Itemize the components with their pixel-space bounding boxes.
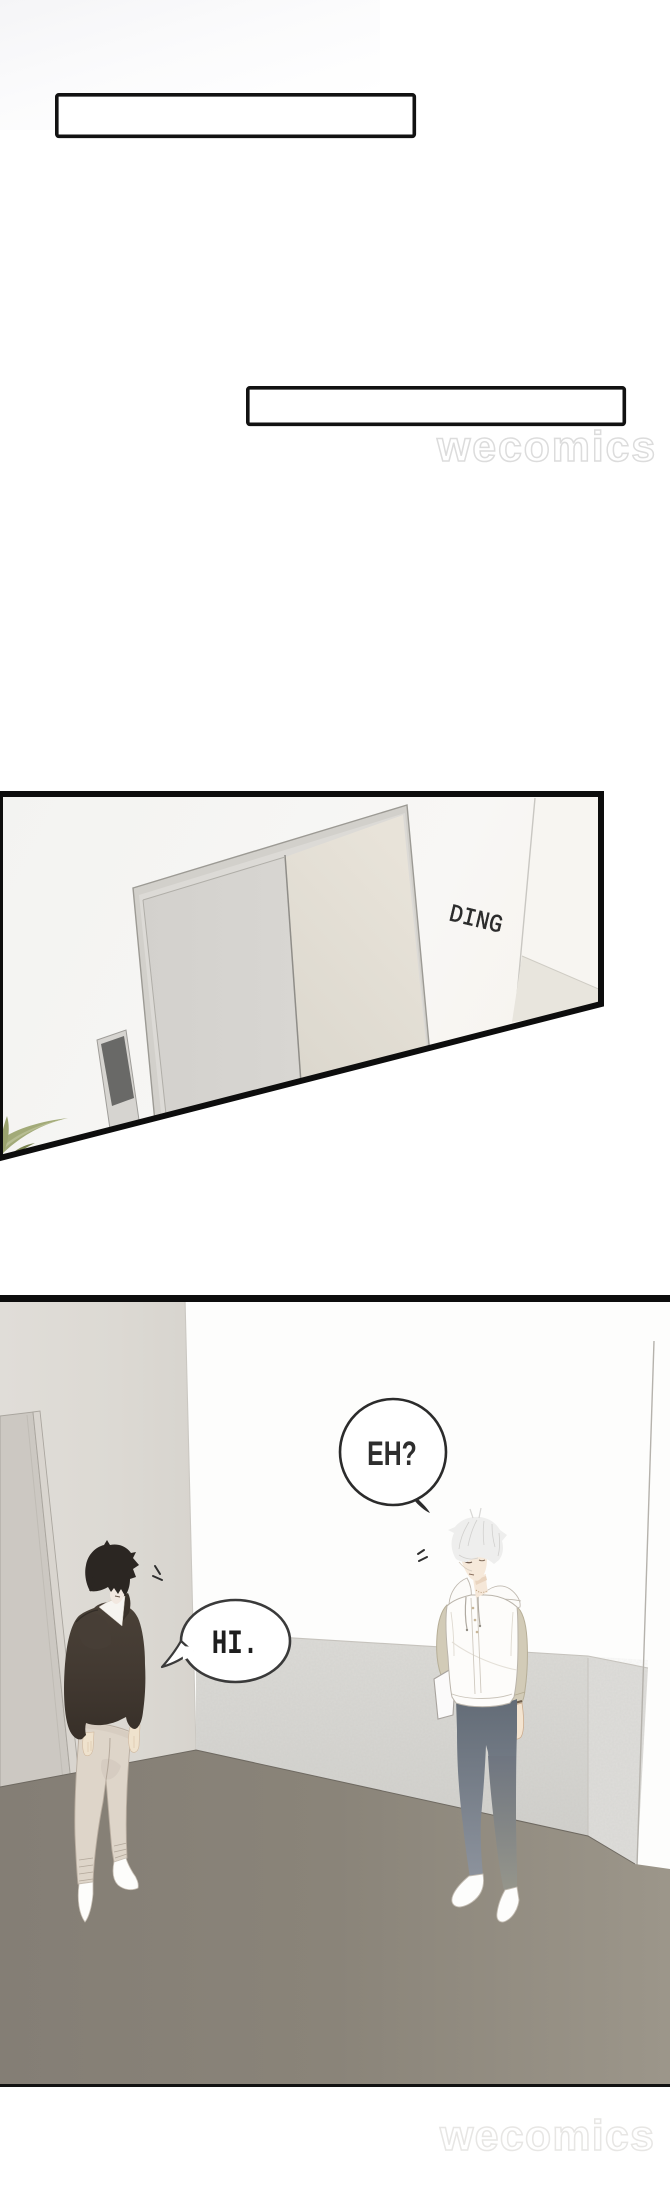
svg-text:EH?: EH? [367,1435,417,1473]
svg-text:HI.: HI. [212,1626,259,1664]
svg-text:wecomics: wecomics [439,2112,655,2160]
svg-text:wecomics: wecomics [436,423,657,471]
